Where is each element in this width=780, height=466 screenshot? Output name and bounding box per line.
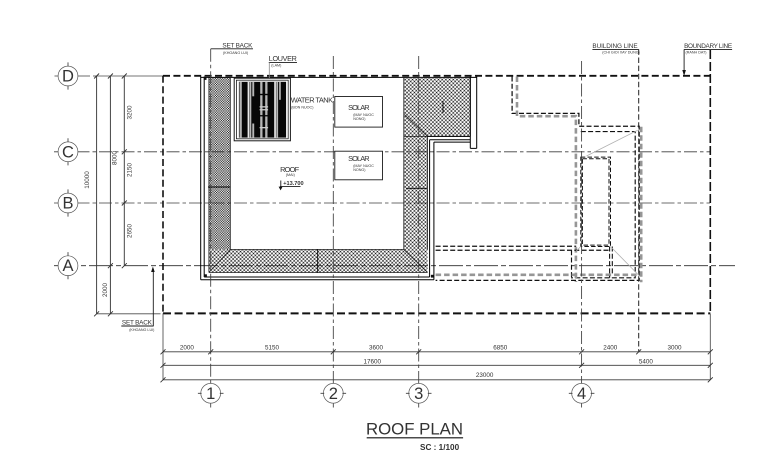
svg-text:23000: 23000 [476,372,494,379]
svg-text:(KHOANG LUI): (KHOANG LUI) [129,328,154,332]
svg-text:5150: 5150 [265,345,280,352]
svg-text:2650: 2650 [127,224,134,239]
svg-text:4: 4 [577,385,586,403]
svg-text:2000: 2000 [180,345,195,352]
svg-text:1: 1 [206,385,215,403]
svg-text:WATER TANK: WATER TANK [291,96,333,105]
svg-text:SOLAR: SOLAR [348,103,370,112]
svg-text:6850: 6850 [493,345,508,352]
svg-text:BOUNDARY LINE: BOUNDARY LINE [684,43,732,50]
svg-text:C: C [62,143,74,161]
svg-text:(LAM): (LAM) [271,64,281,68]
svg-text:17600: 17600 [364,358,382,365]
svg-text:2000: 2000 [102,283,109,298]
svg-text:3000: 3000 [667,345,682,352]
svg-text:2: 2 [329,385,338,403]
svg-text:(CHI GIOI XAY DUNG): (CHI GIOI XAY DUNG) [602,51,640,55]
svg-text:A: A [62,257,73,275]
svg-text:2400: 2400 [603,345,618,352]
svg-text:ROOF PLAN: ROOF PLAN [366,420,463,439]
svg-text:5400: 5400 [639,358,654,365]
svg-text:BUILDING LINE: BUILDING LINE [592,43,637,50]
svg-text:+13.700: +13.700 [283,181,303,187]
svg-text:SC : 1/100: SC : 1/100 [420,443,460,452]
svg-text:(RANH DAT): (RANH DAT) [686,50,707,54]
svg-text:3600: 3600 [369,345,384,352]
svg-text:(KHOANG LUI): (KHOANG LUI) [223,51,248,55]
svg-text:SOLAR: SOLAR [348,154,370,163]
svg-text:8000: 8000 [112,151,119,166]
svg-text:B: B [62,195,73,213]
svg-text:NONG): NONG) [353,168,365,172]
svg-text:10000: 10000 [84,171,91,189]
svg-text:(MAI): (MAI) [286,173,295,177]
svg-text:2150: 2150 [127,163,134,178]
svg-text:LOUVER: LOUVER [269,54,297,63]
svg-text:D: D [62,68,74,86]
svg-text:(BON NUOC): (BON NUOC) [291,105,313,109]
svg-text:3: 3 [414,385,423,403]
svg-text:3200: 3200 [127,105,134,120]
svg-text:NONG): NONG) [353,117,365,121]
